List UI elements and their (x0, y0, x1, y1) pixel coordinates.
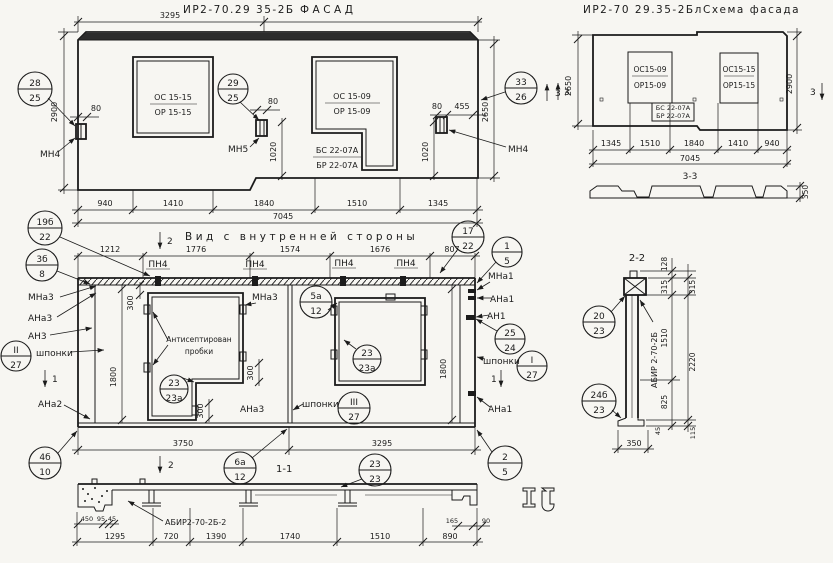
s22-dim-350: 350 (626, 439, 641, 448)
facade-window-1: ОС 15-15 ОР 15-15 (133, 57, 213, 137)
callout-6a-12: 6а 12 (224, 452, 256, 484)
schema-title-code: ИР2-70 29.35-2Бл (583, 4, 703, 16)
callout-5a-12: 5а 12 (300, 286, 332, 318)
schema-dim-2900: 2900 (785, 74, 794, 94)
callout-top: 1 (504, 242, 510, 252)
schema-window-1: ОС15-09 ОР15-09 (628, 52, 672, 103)
panel-drawing: ИР2-70.29 35-2Б ФАСАД ОС 15-15 ОР 15-15 … (0, 0, 833, 563)
callout-bottom: 23а (359, 364, 376, 374)
section-3-3: 3-3 350 (590, 172, 810, 202)
plug-note-line1: Антисептирован (166, 335, 232, 344)
section-3-label: 3 (564, 88, 570, 98)
facade-dim-80-left: 80 (91, 104, 101, 113)
section-1-1-title: 1-1 (276, 464, 292, 475)
s11-dim-1295: 1295 (105, 532, 125, 541)
edge-anchor-icon (468, 289, 476, 293)
facade-top-band (78, 33, 478, 40)
callout-17-22: 17 22 (452, 221, 484, 253)
callout-25-24: 25 24 (495, 324, 525, 354)
label-shponki-right: шпонки (483, 357, 520, 367)
facade-dim-3295: 3295 (160, 11, 180, 20)
label-ana2: АНа2 (38, 400, 62, 410)
anchor-mn5-icon (256, 120, 267, 136)
plug-note-line2: пробки (185, 347, 213, 356)
callout-bottom: 12 (234, 473, 245, 483)
callout-1-5: 1 5 (492, 237, 522, 267)
callout-19b-22: 19б 22 (28, 211, 62, 245)
facade-window-2: ОС 15-09 ОР 15-09 БС 22-07А БР 22-07А (312, 57, 397, 170)
section-3-3-title: 3-3 (683, 172, 698, 182)
callout-top: 19б (36, 218, 53, 228)
schema-doorblock: БС 22-07А БР 22-07А (652, 103, 694, 121)
schema-mark-a (600, 98, 603, 101)
callout-top: 3б (36, 255, 48, 265)
label-mn4-right: МН4 (508, 145, 529, 155)
callout-bottom: 23а (166, 394, 183, 404)
callout-top: 17 (462, 227, 473, 237)
s11-dim-720: 720 (163, 532, 178, 541)
joint-mark-icon (252, 276, 258, 286)
callout-bottom: 27 (348, 413, 359, 423)
interior-view: Вид с внутренней стороны Антисептирован … (1, 211, 547, 487)
s22-dim-315a: 315 (660, 280, 669, 295)
s22-dim-2220: 2220 (688, 352, 697, 371)
callout-III-27: III 27 (338, 392, 370, 424)
label-mna3-mid: МНа3 (252, 293, 278, 303)
schema-dim-350: 350 (801, 185, 810, 200)
joint-mark-icon (340, 276, 346, 286)
callout-24b-23: 24б 23 (582, 384, 616, 418)
section-2-label: 2 (168, 461, 174, 471)
label-shponki-left: шпонки (36, 349, 73, 359)
facade-view: ИР2-70.29 35-2Б ФАСАД ОС 15-15 ОР 15-15 … (18, 4, 561, 227)
schema-window-2: ОС15-15 ОР15-15 (720, 53, 758, 103)
label-mn4-left: МН4 (40, 150, 61, 160)
s11-dim-90: 90 (482, 517, 490, 525)
facade-dim-1020-mid: 1020 (269, 142, 278, 162)
callout-bottom: 5 (502, 468, 508, 478)
s11-dim-450: 450 (81, 515, 93, 523)
interior-dim-3750: 3750 (173, 439, 193, 448)
edge-profile-icon (523, 488, 535, 507)
blueprint-sheet: ИР2-70.29 35-2Б ФАСАД ОС 15-15 ОР 15-15 … (0, 0, 833, 563)
callout-29-25: 29 25 (218, 74, 248, 104)
schema-dim-1345: 1345 (601, 139, 621, 148)
s11-dim-1390: 1390 (206, 532, 226, 541)
anchor-mn4-right-icon (436, 117, 447, 133)
interior-window-1: Антисептирован пробки (144, 293, 246, 420)
callout-bottom: 22 (462, 242, 473, 252)
label-shponki-mid: шпонки (302, 400, 339, 410)
label-pn4-1: ПН4 (148, 260, 168, 270)
section-2-label: 2 (167, 237, 173, 247)
label-ana3: АНа3 (28, 314, 52, 324)
callout-bottom: 27 (10, 361, 21, 371)
facade-window2-line2: ОР 15-09 (334, 107, 371, 116)
callout-23-23a-window2: 23 23а (353, 345, 381, 374)
callout-23-23a-window1: 23 23а (160, 375, 188, 404)
facade-dim-455: 455 (454, 102, 469, 111)
callout-28-25: 28 25 (18, 72, 52, 106)
section-3-3-profile (590, 186, 787, 198)
interior-dim-1776: 1776 (186, 245, 206, 254)
section-1-label: 1 (52, 375, 58, 385)
interior-window-2 (331, 294, 427, 385)
label-mna3: МНа3 (28, 293, 54, 303)
section-mark-1-right: 1 (491, 370, 501, 387)
s11-dim-1510: 1510 (370, 532, 390, 541)
label-an3: АН3 (28, 332, 47, 342)
section-mark-2-bottom: 2 (160, 456, 174, 473)
s11-dim-165: 165 (446, 517, 458, 525)
facade-dimensions: 3295 2900 2650 80 80 80 455 1020 1020 94… (50, 11, 500, 227)
label-ana1: АНа1 (490, 295, 514, 305)
section-1-1-dimensions: 450 95 45 АБИР2-70-2Б-2 165 90 1295 720 … (72, 501, 490, 546)
s22-dim-825: 825 (660, 395, 669, 410)
label-mn5: МН5 (228, 145, 248, 155)
facade-dim-2650: 2650 (481, 102, 490, 122)
facade-window1-line2: ОР 15-15 (155, 108, 192, 117)
s22-dim-315b: 315 (688, 280, 697, 295)
label-pn4-2: ПН4 (245, 260, 265, 270)
callout-bottom: 23 (593, 327, 604, 337)
concrete-dots (82, 487, 108, 503)
facade-window1-line1: ОС 15-15 (154, 93, 192, 102)
facade-doorblock-line2: БР 22-07А (316, 161, 358, 170)
section-1-label: 1 (491, 375, 497, 385)
facade-window2-line1: ОС 15-09 (333, 92, 371, 101)
callout-top: 23 (369, 460, 380, 470)
interior-dim-1676: 1676 (370, 245, 390, 254)
callout-bottom: 25 (227, 94, 238, 104)
facade-dim-940: 940 (97, 199, 112, 208)
callout-I-27: I 27 (517, 351, 547, 381)
callout-top: 23 (168, 379, 179, 389)
section-3-label: 3 (810, 88, 816, 98)
schema-title: Схема фасада (703, 4, 800, 16)
callout-top: III (350, 398, 358, 408)
callout-top: 6а (234, 458, 245, 468)
facade-dim-1510: 1510 (347, 199, 367, 208)
label-mna1-top: МНа1 (488, 272, 514, 282)
schema-window2-line1: ОС15-15 (723, 65, 756, 74)
interior-dim-300-bottom: 300 (196, 403, 205, 418)
s11-dim-890: 890 (442, 532, 457, 541)
callout-33-26: 33 26 (505, 72, 537, 104)
callout-top: 4б (39, 453, 51, 463)
schema-mark-b (693, 98, 696, 101)
label-pn4-4: ПН4 (396, 259, 416, 269)
callout-bottom: 27 (526, 371, 537, 381)
facade-dim-7045: 7045 (273, 212, 293, 221)
label-pn4-3: ПН4 (334, 259, 354, 269)
joint-mark-icon (400, 276, 406, 286)
schema-mark-c (780, 98, 783, 101)
facade-anchor-plates (76, 117, 447, 139)
label-ana3-mid: АНа3 (240, 405, 264, 415)
interior-title: Вид с внутренней стороны (185, 231, 418, 243)
schema-doorblock-line1: БС 22-07А (656, 104, 691, 112)
s22-dim-1510: 1510 (660, 328, 669, 347)
section-1-1: 450 95 45 АБИР2-70-2Б-2 165 90 1295 720 … (72, 479, 554, 546)
callout-bottom: 10 (39, 468, 51, 478)
facade-title: ФАСАД (300, 4, 356, 16)
facade-doorblock-line1: БС 22-07А (316, 146, 359, 155)
s22-part-label: АБИР 2-70-2Б (650, 332, 659, 388)
callout-top: II (13, 346, 18, 356)
interior-dim-300-right: 300 (246, 365, 255, 380)
facade-dim-80-mid: 80 (268, 97, 278, 106)
facade-dim-1410: 1410 (163, 199, 183, 208)
edge-anchor-icon (466, 315, 475, 320)
schema-window1-line1: ОС15-09 (634, 65, 667, 74)
section-mark-3-facade: 3 (547, 84, 561, 101)
interior-pn4-labels: ПН4 ПН4 ПН4 ПН4 (146, 259, 418, 270)
callout-23-23: 23 23 (359, 454, 391, 486)
interior-dim-1212: 1212 (100, 245, 120, 254)
callout-bottom: 22 (39, 233, 50, 243)
section-2-2-profile (618, 271, 646, 426)
callout-bottom: 25 (29, 94, 40, 104)
interior-dim-300-top: 300 (126, 295, 135, 310)
facade-dim-1345: 1345 (428, 199, 448, 208)
label-an1: АН1 (487, 312, 506, 322)
section-mark-3-schema-right: 3 (810, 83, 822, 100)
schema-dim-7045: 7045 (680, 154, 700, 163)
callout-2-5: 2 5 (488, 446, 522, 480)
callout-II-27: II 27 (1, 341, 31, 371)
callout-top: 24б (590, 391, 607, 401)
facade-panel-outline (78, 32, 478, 190)
schema-view: ИР2-70 29.35-2Бл Схема фасада ОС15-09 ОР… (558, 4, 822, 202)
callout-4b-10: 4б 10 (29, 447, 61, 479)
callout-bottom: 26 (515, 93, 527, 103)
interior-dim-1574: 1574 (280, 245, 300, 254)
schema-dim-1510: 1510 (640, 139, 660, 148)
interior-section-marks: 2 2 1 1 (45, 232, 501, 473)
callout-20-23: 20 23 (583, 306, 615, 338)
section-mark-2-top: 2 (160, 232, 173, 249)
facade-dim-1020-right: 1020 (421, 142, 430, 162)
callout-top: 23 (361, 349, 372, 359)
s11-dim-1740: 1740 (280, 532, 300, 541)
s11-part-label: АБИР2-70-2Б-2 (165, 518, 226, 527)
callout-top: 33 (515, 78, 526, 88)
callout-bottom: 24 (504, 344, 516, 354)
section-2-2-title: 2-2 (629, 253, 645, 264)
section-1-1-profile (78, 479, 554, 511)
interior-dim-1800-left: 1800 (109, 367, 118, 387)
section-2-2: 2-2 128 315 1510 825 315 2220 45 115 350… (582, 253, 697, 453)
interior-dim-3295: 3295 (372, 439, 392, 448)
callout-top: 28 (29, 79, 41, 89)
interior-dim-1800-right: 1800 (439, 359, 448, 379)
callout-top: I (531, 356, 534, 366)
label-ana1-bottom: АНа1 (488, 405, 512, 415)
s22-dim-45: 45 (654, 427, 662, 435)
schema-dim-940: 940 (764, 139, 779, 148)
edge-anchor-icon (468, 296, 476, 300)
callout-bottom: 5 (504, 257, 510, 267)
edge-anchor-icon (468, 391, 476, 396)
edge-profile-icon (542, 488, 554, 511)
callout-top: 5а (310, 292, 321, 302)
schema-window1-line2: ОР15-09 (634, 81, 666, 90)
facade-dim-1840: 1840 (254, 199, 274, 208)
section-mark-1-left: 1 (45, 370, 58, 387)
facade-dim-80-right: 80 (432, 102, 442, 111)
s22-dim-128: 128 (660, 257, 669, 272)
joint-mark-icon (155, 276, 161, 286)
s22-dim-115: 115 (689, 427, 697, 439)
callout-bottom: 12 (310, 307, 321, 317)
s11-dim-45: 45 (108, 515, 116, 523)
callout-top: 29 (227, 79, 239, 89)
facade-title-code: ИР2-70.29 35-2Б (183, 4, 295, 16)
s11-dim-95: 95 (97, 515, 105, 523)
schema-doorblock-line2: БР 22-07А (656, 112, 690, 120)
callout-bottom: 8 (39, 270, 45, 280)
callout-3b-8: 3б 8 (26, 249, 58, 281)
callout-bottom: 23 (593, 406, 604, 416)
schema-dim-1410: 1410 (728, 139, 748, 148)
callout-top: 25 (504, 329, 515, 339)
callout-top: 2 (502, 453, 508, 463)
schema-dim-1840: 1840 (684, 139, 704, 148)
callout-top: 20 (593, 312, 605, 322)
interior-top-band (78, 278, 475, 285)
schema-window2-line2: ОР15-15 (723, 81, 755, 90)
